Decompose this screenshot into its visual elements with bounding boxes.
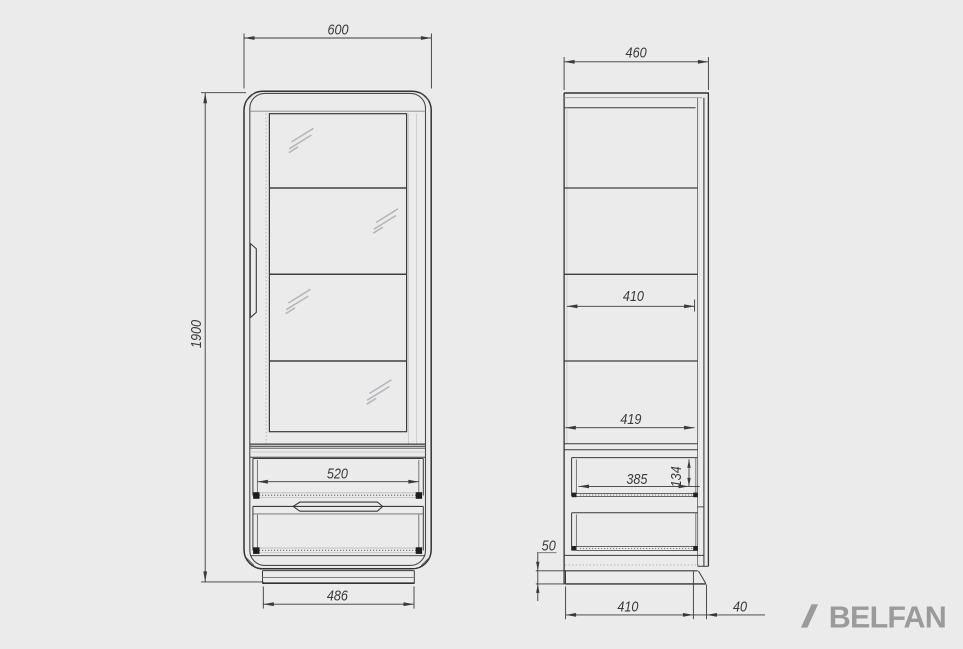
svg-text:600: 600 [327, 22, 349, 39]
svg-text:385: 385 [626, 471, 648, 488]
svg-text:410: 410 [623, 288, 645, 305]
svg-text:50: 50 [542, 537, 557, 554]
svg-text:410: 410 [617, 599, 639, 616]
svg-text:1900: 1900 [188, 319, 205, 348]
svg-text:520: 520 [327, 465, 349, 482]
svg-text:BELFAN: BELFAN [829, 601, 946, 635]
svg-text:40: 40 [733, 599, 748, 616]
svg-text:486: 486 [327, 587, 349, 604]
svg-text:419: 419 [620, 411, 642, 428]
svg-text:460: 460 [626, 45, 648, 62]
svg-text:134: 134 [668, 466, 685, 487]
